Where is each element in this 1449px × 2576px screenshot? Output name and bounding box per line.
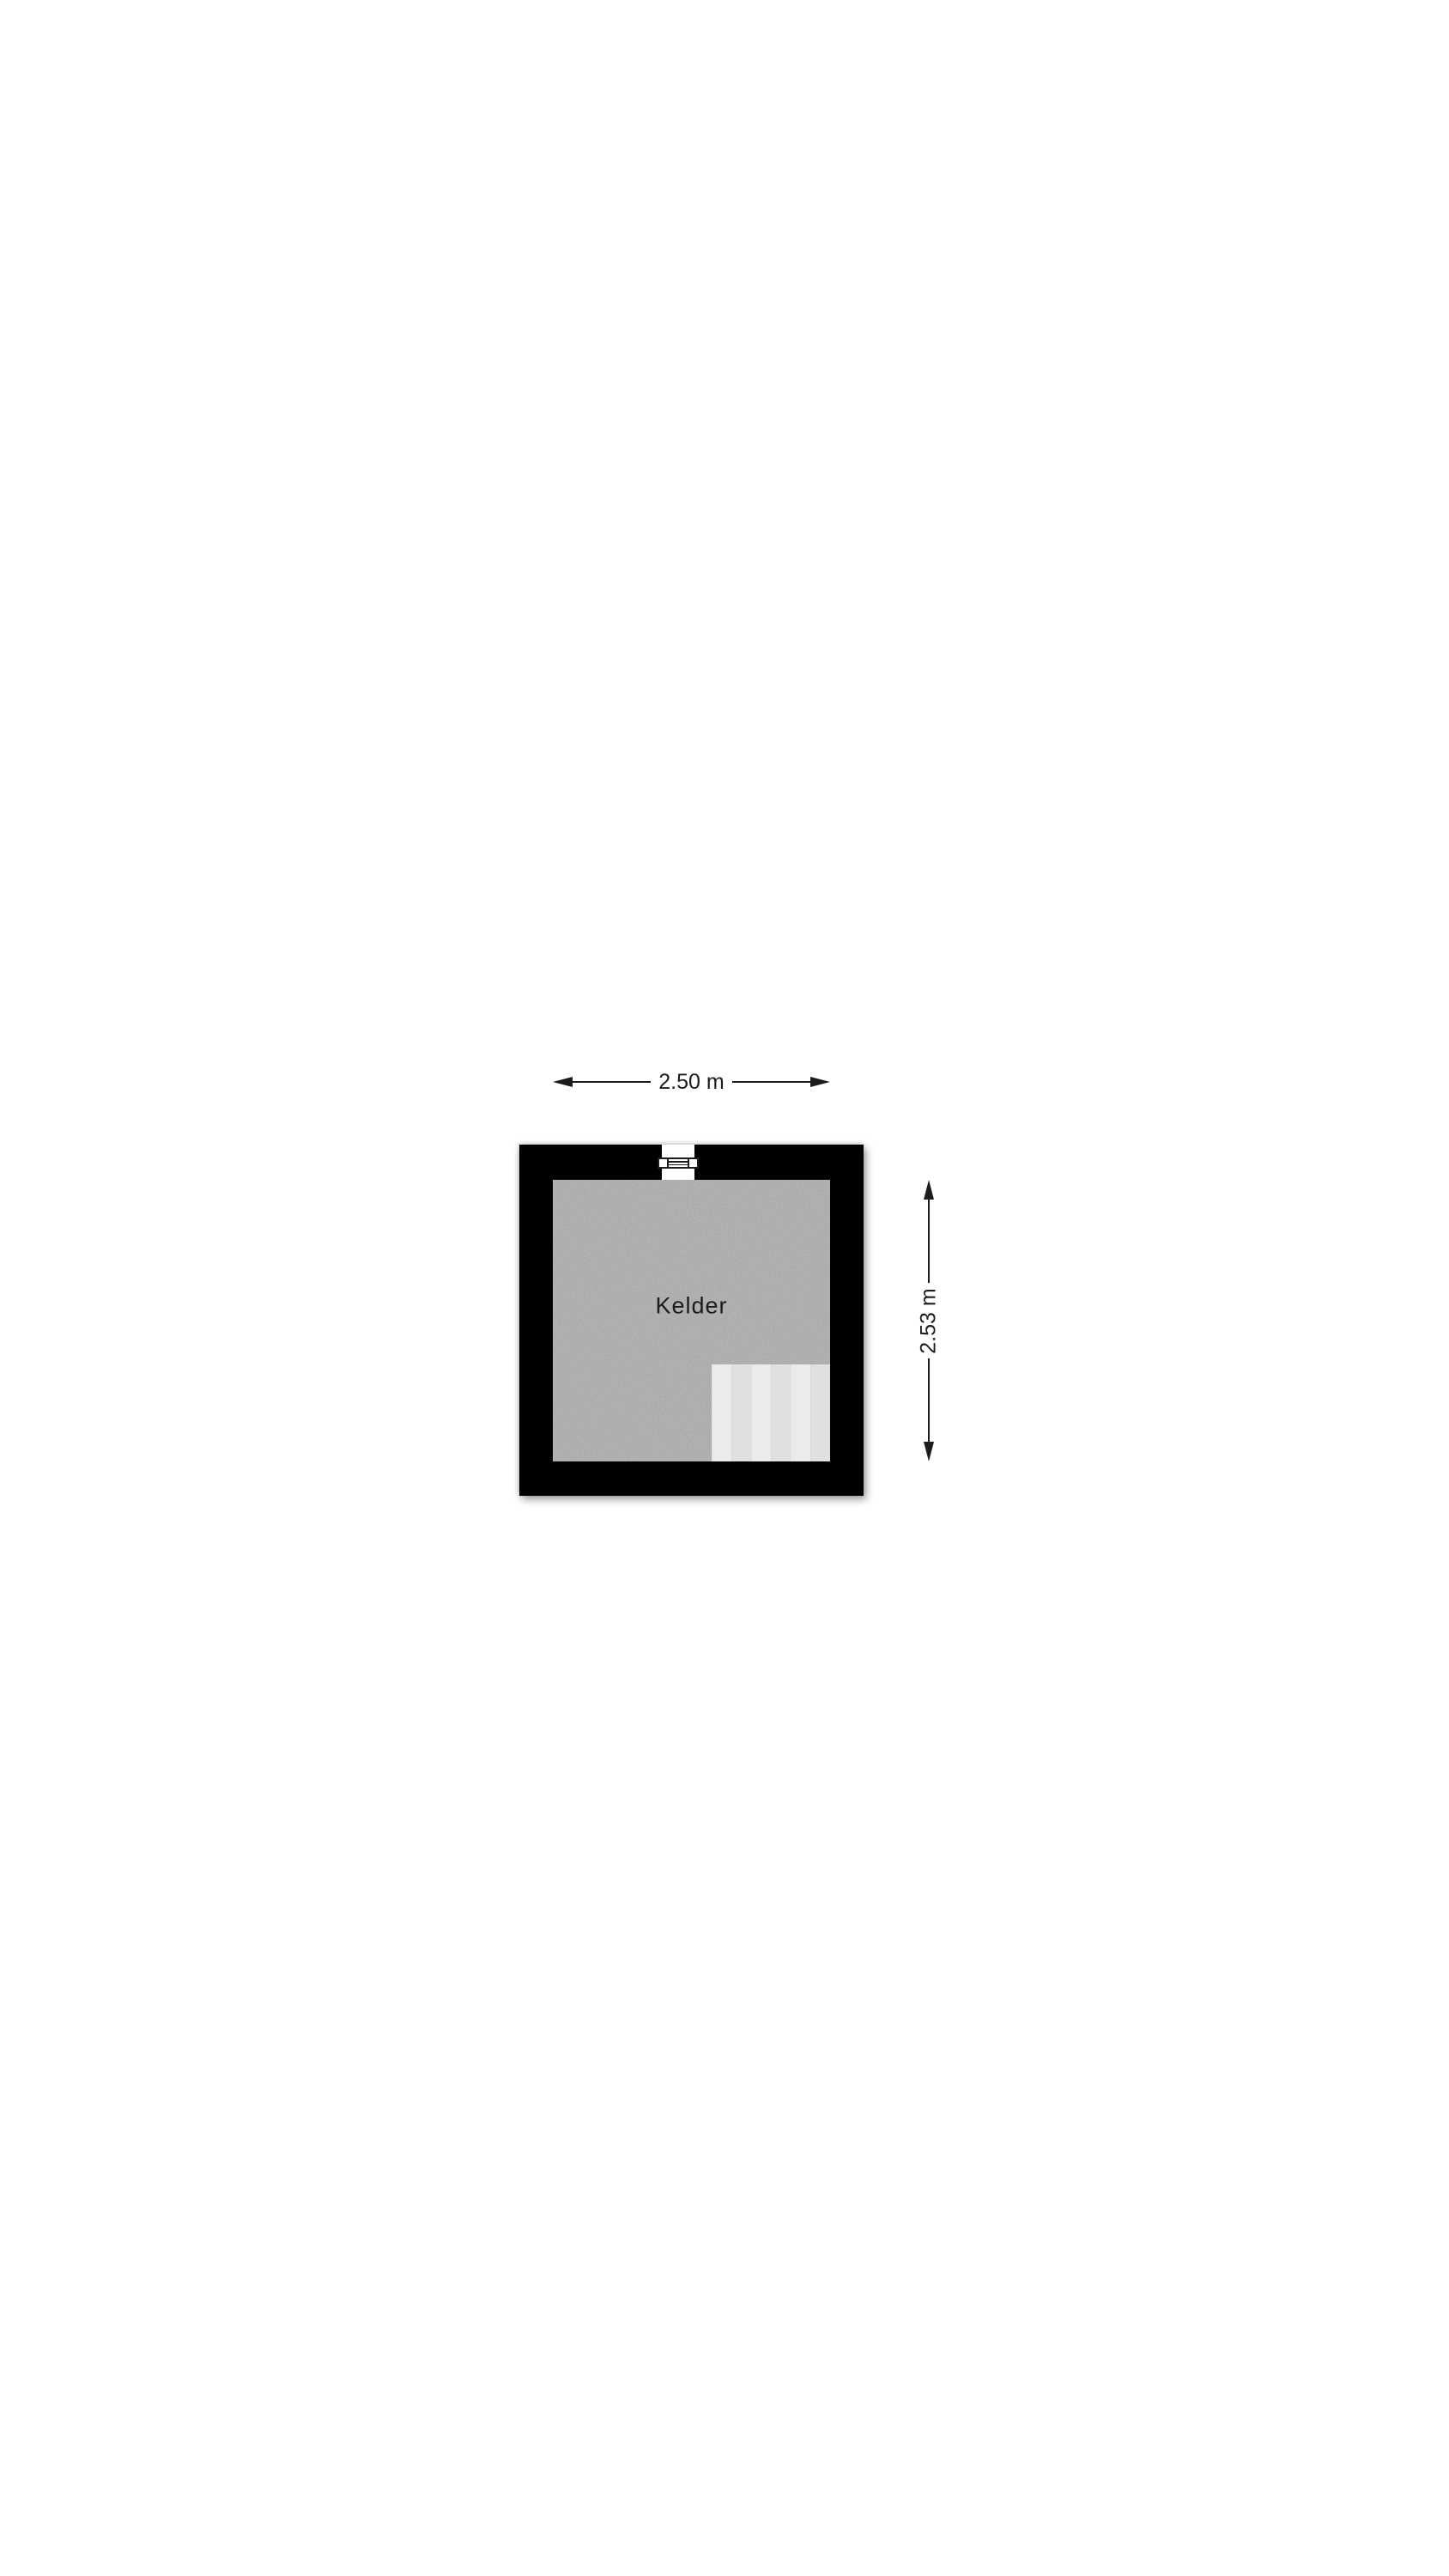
dimension-width: 2.50 m [553, 1070, 830, 1094]
dimension-line-bottom [928, 1358, 930, 1442]
dimension-height-label: 2.53 m [919, 1288, 940, 1353]
room-kelder: Kelder [553, 1180, 830, 1461]
dimension-line-left [573, 1081, 651, 1083]
arrow-down-icon [924, 1442, 934, 1461]
arrow-up-icon [924, 1180, 934, 1200]
dimension-height: 2.53 m [917, 1180, 941, 1461]
floorplan-canvas: 2.50 m 2.53 m [0, 0, 1449, 2576]
floorplan-walls: Kelder [519, 1145, 864, 1496]
arrow-right-icon [810, 1077, 830, 1087]
arrow-left-icon [553, 1077, 573, 1087]
stairs-area [712, 1364, 830, 1461]
room-label: Kelder [553, 1293, 830, 1320]
dimension-width-label: 2.50 m [651, 1072, 731, 1093]
window-glazing [667, 1159, 689, 1167]
window-icon [658, 1157, 699, 1169]
window-glazing-line [669, 1161, 688, 1163]
dimension-line-right [732, 1081, 810, 1083]
dimension-line-top [928, 1200, 930, 1283]
window-glazing-line [669, 1164, 688, 1166]
dimension-height-label-wrap: 2.53 m [917, 1283, 941, 1358]
